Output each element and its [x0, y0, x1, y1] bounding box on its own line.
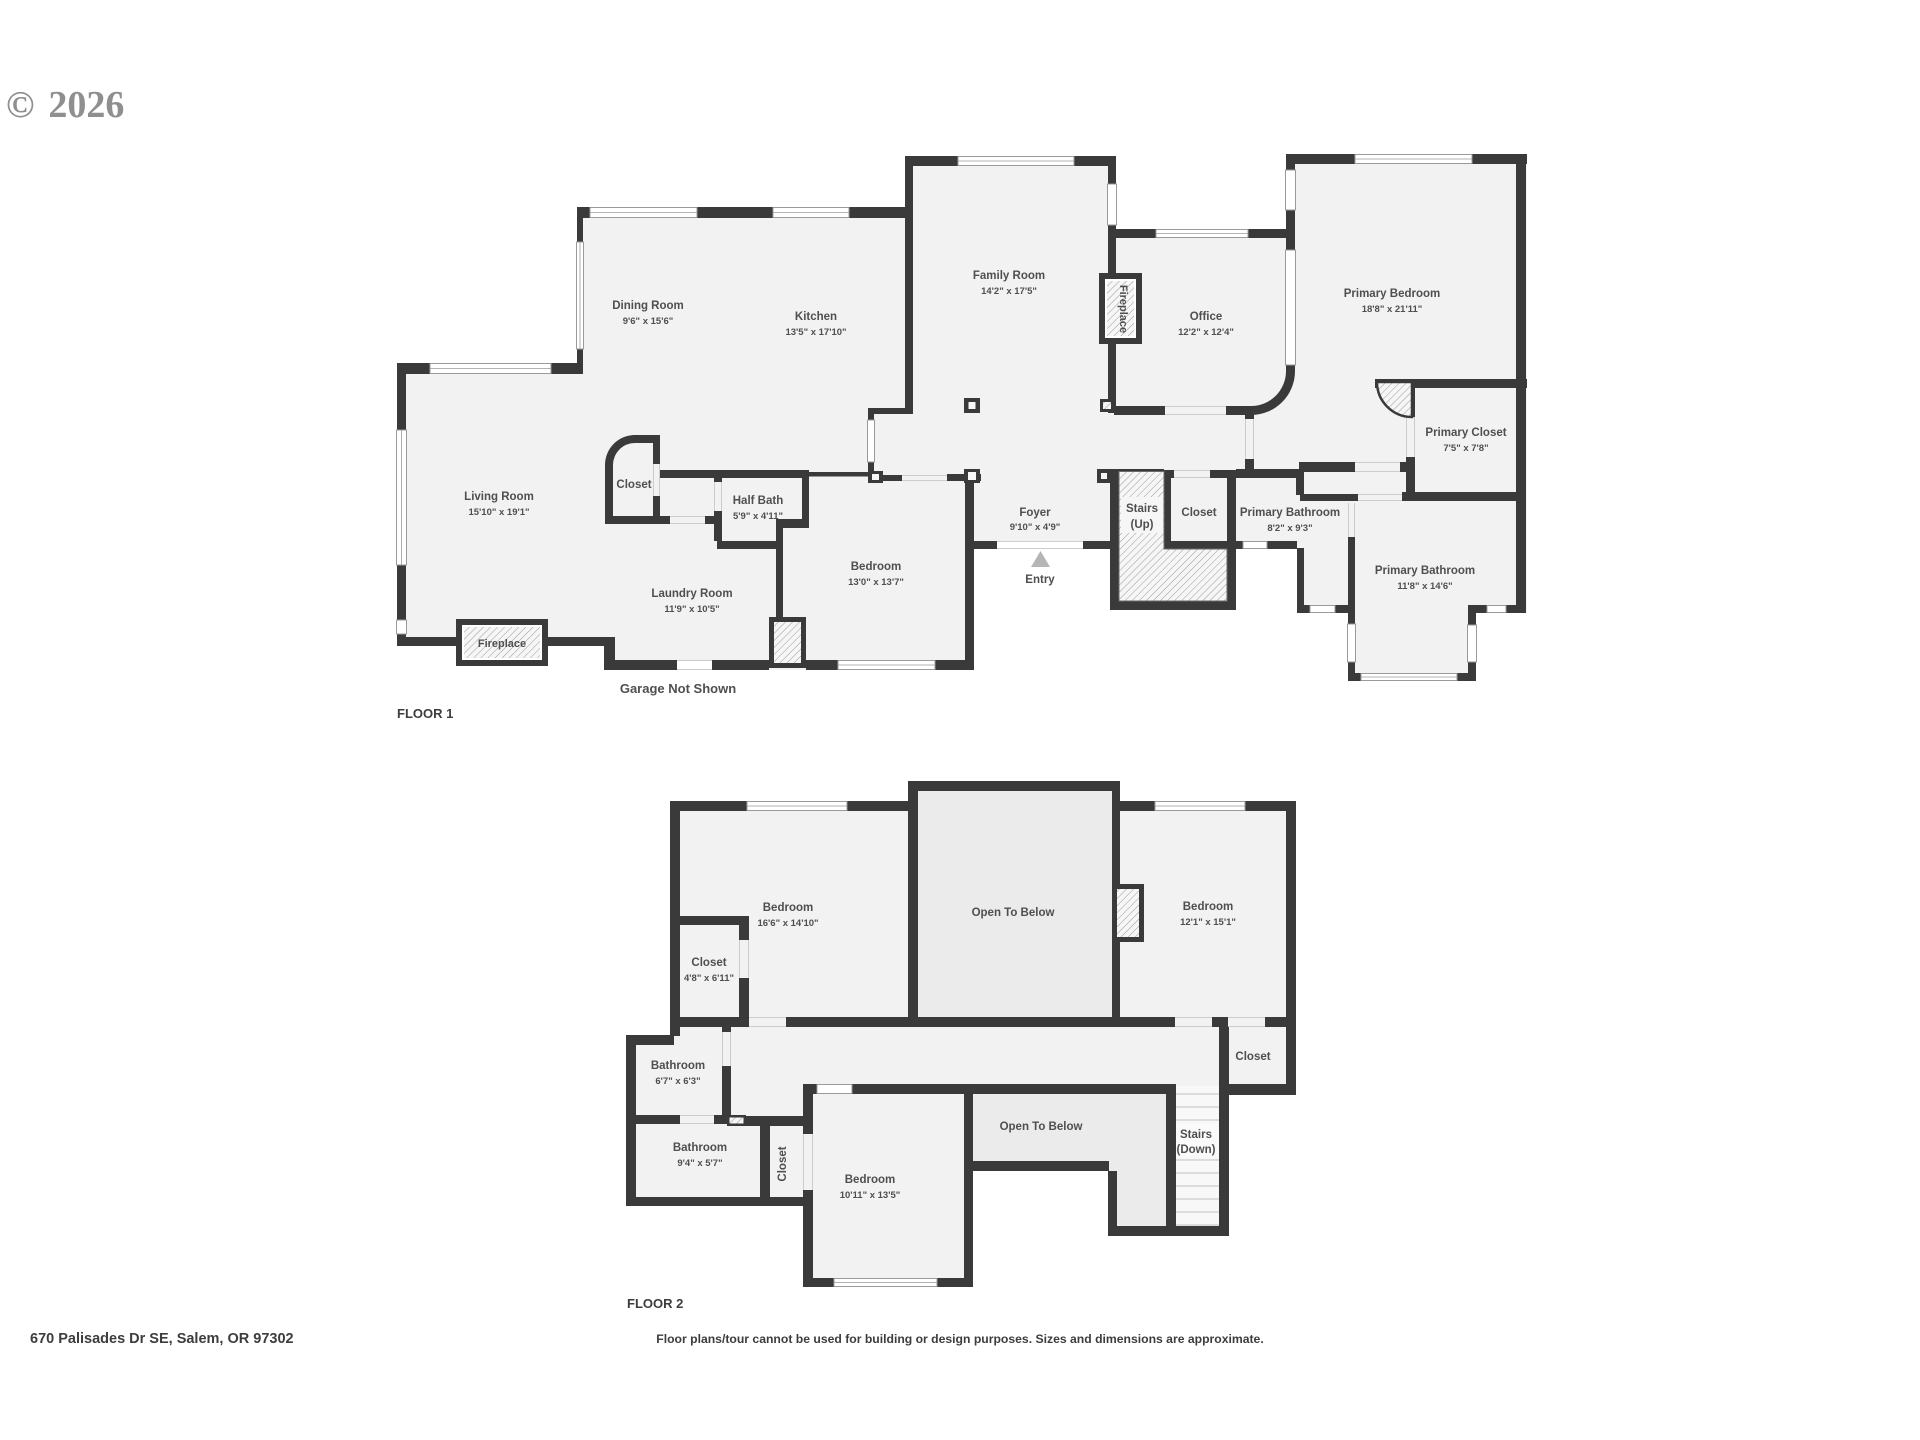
svg-text:Primary Bathroom: Primary Bathroom — [1375, 565, 1475, 577]
svg-text:Primary Closet: Primary Closet — [1425, 427, 1506, 439]
svg-text:13'5" x 17'10": 13'5" x 17'10" — [785, 327, 846, 338]
svg-text:Closet: Closet — [691, 957, 726, 969]
svg-text:Open To Below: Open To Below — [1000, 1121, 1083, 1133]
svg-text:Open To Below: Open To Below — [972, 907, 1055, 919]
svg-text:Dining Room: Dining Room — [612, 300, 684, 312]
svg-text:7'5" x 7'8": 7'5" x 7'8" — [1443, 443, 1488, 454]
svg-text:13'0" x 13'7": 13'0" x 13'7" — [848, 577, 904, 588]
svg-text:Laundry Room: Laundry Room — [651, 588, 732, 600]
svg-text:Entry: Entry — [1025, 574, 1055, 586]
svg-text:Primary Bedroom: Primary Bedroom — [1344, 288, 1441, 300]
svg-text:Garage Not Shown: Garage Not Shown — [620, 681, 736, 696]
svg-text:Stairs: Stairs — [1180, 1129, 1212, 1141]
svg-text:11'8" x 14'6": 11'8" x 14'6" — [1397, 581, 1452, 592]
svg-text:Fireplace: Fireplace — [478, 638, 526, 650]
svg-text:670 Palisades Dr SE, Salem, OR: 670 Palisades Dr SE, Salem, OR 97302 — [30, 1331, 294, 1347]
svg-text:FLOOR 2: FLOOR 2 — [627, 1296, 683, 1311]
svg-text:Living Room: Living Room — [464, 491, 534, 503]
svg-text:4'8" x 6'11": 4'8" x 6'11" — [684, 973, 734, 984]
svg-text:FLOOR 1: FLOOR 1 — [397, 706, 453, 721]
svg-text:Bathroom: Bathroom — [651, 1060, 705, 1072]
svg-text:Kitchen: Kitchen — [795, 311, 837, 323]
svg-text:Stairs: Stairs — [1126, 503, 1158, 515]
svg-text:9'6" x 15'6": 9'6" x 15'6" — [623, 316, 674, 327]
svg-text:11'9" x 10'5": 11'9" x 10'5" — [664, 604, 719, 615]
svg-text:Closet: Closet — [777, 1146, 789, 1181]
svg-text:Primary Bathroom: Primary Bathroom — [1240, 507, 1340, 519]
svg-text:Bedroom: Bedroom — [763, 902, 813, 914]
svg-text:15'10" x 19'1": 15'10" x 19'1" — [468, 507, 529, 518]
svg-text:9'4" x 5'7": 9'4" x 5'7" — [677, 1158, 722, 1169]
svg-text:Closet: Closet — [616, 479, 651, 491]
svg-text:Bedroom: Bedroom — [851, 561, 901, 573]
svg-text:©2026: ©2026 — [6, 84, 124, 126]
svg-text:18'8" x 21'11": 18'8" x 21'11" — [1362, 304, 1423, 315]
svg-text:Half Bath: Half Bath — [733, 495, 783, 507]
svg-text:(Up): (Up) — [1131, 519, 1154, 531]
svg-text:Bedroom: Bedroom — [1183, 901, 1233, 913]
svg-text:6'7" x 6'3": 6'7" x 6'3" — [655, 1076, 700, 1087]
svg-text:Bedroom: Bedroom — [845, 1174, 895, 1186]
svg-text:Floor plans/tour cannot be use: Floor plans/tour cannot be used for buil… — [656, 1332, 1263, 1346]
svg-text:12'2" x 12'4": 12'2" x 12'4" — [1178, 327, 1234, 338]
svg-text:16'6" x 14'10": 16'6" x 14'10" — [757, 918, 818, 929]
svg-text:Office: Office — [1190, 311, 1223, 323]
svg-text:Closet: Closet — [1235, 1051, 1270, 1063]
svg-text:Family Room: Family Room — [973, 270, 1045, 282]
svg-text:Closet: Closet — [1181, 507, 1216, 519]
svg-text:Foyer: Foyer — [1019, 507, 1051, 519]
svg-text:14'2" x 17'5": 14'2" x 17'5" — [981, 286, 1037, 297]
svg-text:(Down): (Down) — [1177, 1144, 1216, 1156]
svg-text:10'11" x 13'5": 10'11" x 13'5" — [840, 1190, 901, 1201]
svg-text:Bathroom: Bathroom — [673, 1142, 727, 1154]
svg-text:9'10" x 4'9": 9'10" x 4'9" — [1010, 522, 1061, 533]
svg-text:12'1" x 15'1": 12'1" x 15'1" — [1180, 917, 1236, 928]
svg-text:Fireplace: Fireplace — [1117, 285, 1129, 333]
svg-text:8'2" x 9'3": 8'2" x 9'3" — [1267, 523, 1312, 534]
svg-text:5'9" x 4'11": 5'9" x 4'11" — [733, 511, 783, 522]
